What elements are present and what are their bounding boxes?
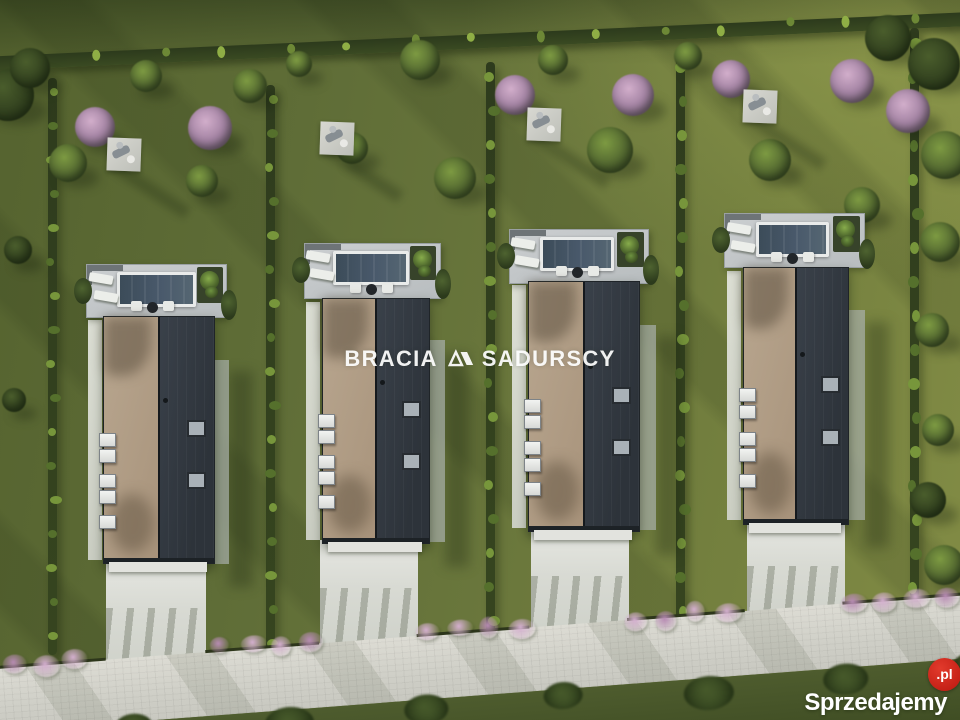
patio-chair xyxy=(340,139,348,147)
roof-tree-shadow xyxy=(110,494,154,553)
hedge-bush xyxy=(48,122,58,130)
patio-shadow xyxy=(746,112,827,171)
roof-dark-slope xyxy=(376,299,429,543)
hedge-bush xyxy=(269,401,281,410)
terrace-edge xyxy=(725,214,730,234)
dormer-window xyxy=(99,433,116,447)
tree-shadow xyxy=(243,91,279,110)
roof-hatch xyxy=(187,420,206,437)
hedge-bush xyxy=(486,242,496,252)
sun-lounger xyxy=(510,237,535,250)
driveway-shadow-stripes xyxy=(106,608,206,670)
hedgerow-bush xyxy=(287,44,295,54)
dormer-window xyxy=(739,474,756,488)
sprzedajemy-pl-badge: .pl xyxy=(928,658,960,691)
hedge-bush xyxy=(48,428,56,436)
hedge-bush xyxy=(265,265,274,274)
hedge-bush xyxy=(675,470,685,481)
verge-bush xyxy=(114,712,154,720)
garden-table xyxy=(572,267,583,278)
hedge-bush xyxy=(488,208,496,218)
verge-bush xyxy=(543,681,584,711)
planter-bed xyxy=(197,267,223,303)
dormer-window xyxy=(739,448,756,462)
tree xyxy=(233,69,267,103)
hedge-bush xyxy=(46,564,57,572)
dormer-window xyxy=(99,449,116,463)
swimming-pool xyxy=(540,237,614,271)
hedge-bush xyxy=(488,106,500,116)
flowering-shrub xyxy=(871,592,897,614)
tree-shadow xyxy=(920,505,958,525)
tree-shadow xyxy=(196,187,230,205)
driveway-shadow-stripes xyxy=(747,566,845,622)
tree-shadow xyxy=(622,99,666,122)
hedge-bush xyxy=(484,480,493,490)
tree xyxy=(130,60,162,92)
tree xyxy=(910,482,946,518)
flowering-shrub xyxy=(270,636,291,657)
hedge-bush xyxy=(912,106,923,118)
patio-lounger xyxy=(324,128,344,143)
flowering-shrub xyxy=(2,654,27,675)
tree-shadow xyxy=(684,62,713,77)
roof-hatch xyxy=(821,429,840,446)
hedge-bush xyxy=(908,582,917,594)
tree-shadow xyxy=(346,154,380,172)
hedgerow-bush xyxy=(467,33,475,42)
hedge-bush xyxy=(48,326,60,334)
flowering-tree xyxy=(495,75,535,115)
hedge-bush xyxy=(267,129,278,138)
planter-bed xyxy=(617,232,644,267)
hedge-bush xyxy=(484,174,495,184)
verge-bush xyxy=(403,693,449,720)
tree-shadow xyxy=(934,569,960,591)
pool-terrace xyxy=(724,213,865,268)
flowering-tree xyxy=(886,89,930,133)
tree-shadow xyxy=(918,66,960,95)
tree-shadow xyxy=(932,436,960,454)
hedge-bush xyxy=(912,310,920,322)
planter-bed xyxy=(833,216,860,252)
sun-lounger xyxy=(305,250,330,263)
bracia-sadurscy-watermark: BRACIASADURSCY xyxy=(0,344,960,374)
hedge-bush xyxy=(679,402,690,413)
terrace-edge xyxy=(510,230,546,236)
house-cast-shadow xyxy=(229,371,253,587)
hedge-bush xyxy=(50,292,60,300)
hedgerow-bush xyxy=(662,27,670,35)
roof-eave xyxy=(529,526,639,531)
hedge-bush xyxy=(488,514,499,524)
terrace-shrub xyxy=(292,257,310,283)
road-curb xyxy=(205,641,319,653)
hedge-bush xyxy=(265,469,276,478)
flowering-shrub xyxy=(240,634,267,653)
hedge-bush xyxy=(46,462,56,470)
hedge-bush xyxy=(675,62,686,73)
hedge-bush xyxy=(908,276,919,288)
sprzedajemy-wordmark: Sprzedajemy xyxy=(804,689,947,716)
flowering-tree xyxy=(712,60,750,98)
hedgerow-bush xyxy=(841,16,850,28)
terrace-shrub xyxy=(221,290,237,320)
planter-shrub xyxy=(841,235,854,247)
tree-shadow xyxy=(930,246,960,268)
patio-chair xyxy=(763,107,771,115)
tree-shadow xyxy=(14,256,43,271)
flowering-shrub xyxy=(508,618,536,640)
hedge-bush xyxy=(679,96,687,107)
tree xyxy=(336,132,368,164)
terrace-edge xyxy=(725,214,761,220)
chimney xyxy=(163,398,168,403)
dormer-window xyxy=(318,430,335,444)
verge-bush xyxy=(683,674,735,712)
roof-tree-shadow xyxy=(744,268,788,329)
dormer-window xyxy=(318,455,335,469)
hedge-bush xyxy=(269,95,278,104)
hedge-bush xyxy=(484,276,496,286)
side-path xyxy=(848,310,865,520)
roof-hatch xyxy=(187,472,206,489)
side-walkway xyxy=(512,285,526,528)
dormer-window xyxy=(524,415,541,429)
tree xyxy=(587,127,633,173)
roof-dark-slope xyxy=(584,282,639,531)
flowering-shrub xyxy=(655,610,677,632)
hedge-bush xyxy=(908,480,916,492)
hedge-bush xyxy=(267,435,276,444)
tree-shadow xyxy=(444,182,488,205)
dormer-window xyxy=(318,471,335,485)
pool-lane-reflections xyxy=(336,254,406,282)
pool-terrace xyxy=(86,264,227,318)
roof-hatch xyxy=(612,387,631,404)
roof-dark-slope xyxy=(796,268,848,524)
hedge-bush xyxy=(675,572,686,583)
pool-terrace xyxy=(304,243,441,299)
dormer-window xyxy=(99,474,116,488)
tree-shadow xyxy=(896,114,942,138)
chimney xyxy=(380,380,385,385)
planter-shrub xyxy=(625,251,638,263)
sun-lounger xyxy=(93,290,118,303)
hedge-bush xyxy=(269,605,278,614)
driveway xyxy=(106,558,206,670)
roof-eave xyxy=(323,538,429,543)
garden-chair xyxy=(131,301,142,311)
planter-shrub xyxy=(620,236,639,255)
dormer-window xyxy=(739,432,756,446)
dormer-window xyxy=(524,482,541,496)
tree xyxy=(920,222,960,262)
garden-table xyxy=(147,302,158,313)
dormer-window xyxy=(318,414,335,428)
hedge-bush xyxy=(486,548,494,558)
tree xyxy=(10,48,50,88)
garden-patio xyxy=(742,89,777,123)
hedge-bush xyxy=(677,232,688,243)
roof-panel-lines xyxy=(796,268,848,524)
hedge-bush xyxy=(910,548,922,560)
hedge-bush xyxy=(265,571,277,580)
tree-shadow xyxy=(840,84,886,108)
tree xyxy=(915,313,949,347)
hedge-bush xyxy=(912,514,922,526)
hedgerow-bush xyxy=(592,29,600,39)
sun-lounger xyxy=(309,268,334,281)
tree-shadow xyxy=(759,164,803,187)
tree xyxy=(749,139,791,181)
tree-shadow xyxy=(722,83,762,104)
tree-shadow xyxy=(410,64,452,86)
tree-shadow xyxy=(296,71,323,85)
hedge-bush xyxy=(677,538,686,549)
hedge-bush xyxy=(484,378,492,388)
flowering-shrub xyxy=(298,631,323,653)
driveway-shadow-stripes xyxy=(531,576,629,634)
roof-ridge xyxy=(375,299,377,543)
flowering-shrub xyxy=(415,622,440,641)
garden-chair xyxy=(803,252,814,262)
patio-lounger xyxy=(747,96,767,111)
hedgerow-bush xyxy=(342,42,350,50)
roof-hatch xyxy=(402,401,421,418)
hedge-bush xyxy=(50,88,58,96)
hedge-bush xyxy=(910,140,918,152)
flowering-tree xyxy=(75,107,115,147)
terrace-shrub xyxy=(497,243,515,269)
dormer-window xyxy=(99,490,116,504)
roof xyxy=(322,298,430,544)
tree-shadow xyxy=(854,210,892,230)
tree xyxy=(674,42,702,70)
roof-ridge xyxy=(583,282,585,531)
watermark-text-left: BRACIA xyxy=(344,346,437,371)
flowering-shrub xyxy=(934,587,960,609)
hedge-bush xyxy=(46,156,58,164)
tree-shadow xyxy=(85,131,127,153)
tree-shadow xyxy=(198,131,244,155)
garden-chair xyxy=(382,283,393,293)
roof-ridge xyxy=(795,268,797,524)
patio-lounger xyxy=(111,144,131,159)
tree xyxy=(4,236,32,264)
hedgerow-bush xyxy=(786,17,794,26)
hedge-bush xyxy=(486,446,498,456)
garden-patio xyxy=(526,107,561,141)
terrace-edge xyxy=(87,265,92,285)
rear-facade-strip xyxy=(749,523,841,533)
hedgerow-bush xyxy=(717,25,725,36)
hedge-bush xyxy=(677,130,687,141)
dormer-window xyxy=(524,441,541,455)
dormer-window xyxy=(524,399,541,413)
roof-eave xyxy=(744,519,848,524)
hedge-bush xyxy=(488,616,500,626)
planter-bed xyxy=(410,246,436,280)
tree xyxy=(400,40,440,80)
side-path xyxy=(213,360,229,564)
aerial-property-render: BRACIASADURSCY Sprzedajemy .pl xyxy=(0,0,960,720)
terrace-shrub xyxy=(859,239,875,269)
driveway xyxy=(531,528,629,634)
bracia-sadurscy-logo-icon xyxy=(447,349,475,368)
patio-chair xyxy=(536,112,543,119)
swimming-pool xyxy=(333,251,409,285)
pool-lane-reflections xyxy=(120,275,193,304)
tree-shadow xyxy=(12,407,37,420)
flowering-tree xyxy=(830,59,874,103)
dormer-window xyxy=(99,515,116,529)
pool-lane-reflections xyxy=(759,225,826,254)
pool-lane-reflections xyxy=(543,240,611,268)
tree xyxy=(286,51,312,77)
tree-shadow xyxy=(0,97,47,126)
patio-chair xyxy=(116,142,123,149)
terrace-edge xyxy=(87,265,123,271)
dormer-window xyxy=(739,388,756,402)
dormer-window xyxy=(524,458,541,472)
patio-lounger xyxy=(531,114,551,129)
side-walkway xyxy=(306,302,320,540)
hedge-bush xyxy=(908,72,917,84)
roof-hatch xyxy=(612,439,631,456)
hedge-bush xyxy=(48,530,57,538)
road-curb xyxy=(842,589,960,605)
dormer-window xyxy=(318,495,335,509)
hedge-bush xyxy=(910,446,921,458)
hedgerow-bush xyxy=(217,46,226,58)
patio-shadow xyxy=(110,160,191,219)
side-walkway xyxy=(727,271,741,520)
hedgerow-bush xyxy=(162,47,170,56)
patio-chair xyxy=(127,155,135,163)
road-curb xyxy=(0,658,106,671)
roof-hatch xyxy=(821,376,840,393)
garden-table xyxy=(787,253,798,264)
rear-facade-strip xyxy=(534,530,632,540)
planter-shrub xyxy=(205,286,218,298)
rear-facade-strip xyxy=(328,542,422,552)
hedge-bush xyxy=(50,190,59,198)
hedge-bush xyxy=(50,496,62,504)
roof xyxy=(743,267,849,525)
hedge-bush xyxy=(679,606,687,617)
tree xyxy=(434,157,476,199)
roof-eave xyxy=(104,558,214,563)
plot-hedge xyxy=(910,28,919,598)
hedge-bush xyxy=(679,504,691,515)
hedge-bush xyxy=(910,242,919,254)
hedge-bush xyxy=(675,164,687,175)
flowering-shrub xyxy=(209,636,229,653)
hedge-bush xyxy=(488,310,497,320)
garden-chair xyxy=(771,252,782,262)
tree-shadow xyxy=(931,157,960,183)
hedge-bush xyxy=(267,231,279,240)
roof-panel-lines xyxy=(376,299,429,543)
hedge-bush xyxy=(269,503,277,512)
roof-tree-shadow xyxy=(328,475,370,534)
tree-shadow xyxy=(140,82,174,100)
tree xyxy=(922,414,954,446)
flowering-shrub xyxy=(714,602,742,623)
garden-table xyxy=(366,284,377,295)
planter-shrub xyxy=(200,271,219,290)
tree xyxy=(924,545,960,585)
road-curb xyxy=(417,625,530,637)
patio-shadow xyxy=(323,144,404,203)
terrace-shrub xyxy=(435,269,451,299)
hedgerow-bush xyxy=(537,30,546,42)
hedge-bush xyxy=(46,258,54,266)
hedge-bush xyxy=(48,632,58,640)
patio-shadow xyxy=(530,130,611,189)
tree-shadow xyxy=(20,72,62,94)
flowering-shrub xyxy=(447,619,474,637)
flowering-tree xyxy=(188,106,232,150)
tree xyxy=(186,165,218,197)
hedge-bush xyxy=(48,224,59,232)
planter-shrub xyxy=(418,265,431,277)
tree xyxy=(49,144,87,182)
rear-facade-strip xyxy=(109,562,207,572)
hedgerow-bush xyxy=(92,50,100,61)
tree-shadow xyxy=(59,167,99,188)
roof-tan-slope xyxy=(323,299,376,543)
roof-tree-shadow xyxy=(749,452,791,513)
sun-lounger xyxy=(726,222,751,235)
roof-tree-shadow xyxy=(535,461,579,521)
terrace-edge xyxy=(305,244,310,264)
boundary-hedgerow xyxy=(0,12,960,71)
hedge-bush xyxy=(679,198,688,209)
hedge-bush xyxy=(269,299,280,308)
pool-terrace xyxy=(509,229,649,284)
tree xyxy=(921,131,960,179)
tree-shadow xyxy=(597,153,645,178)
hedge-bush xyxy=(50,598,58,606)
garden-chair xyxy=(350,283,361,293)
garden-chair xyxy=(556,266,567,276)
tree-shadow xyxy=(875,41,923,66)
hedge-bush xyxy=(267,639,278,648)
patio-chair xyxy=(752,94,759,101)
hedge-bush xyxy=(269,197,279,206)
terrace-shrub xyxy=(712,227,730,253)
hedge-bush xyxy=(912,412,921,424)
flowering-shrub xyxy=(624,612,648,633)
tree-shadow xyxy=(505,99,547,121)
roof-tree-shadow xyxy=(529,282,576,342)
tree-shadow xyxy=(548,66,580,83)
plot-hedge xyxy=(676,52,685,628)
hedgerow-bush xyxy=(412,34,420,45)
hedge-bush xyxy=(267,537,277,546)
roof xyxy=(528,281,640,532)
driveway-shadow-stripes xyxy=(320,588,418,646)
planter-shrub xyxy=(836,220,855,239)
hedge-bush xyxy=(267,333,275,342)
roof-tan-slope xyxy=(529,282,584,531)
tree xyxy=(844,187,880,223)
sun-lounger xyxy=(730,240,755,253)
roof-hatch xyxy=(402,453,421,470)
flowering-shrub xyxy=(840,593,868,614)
